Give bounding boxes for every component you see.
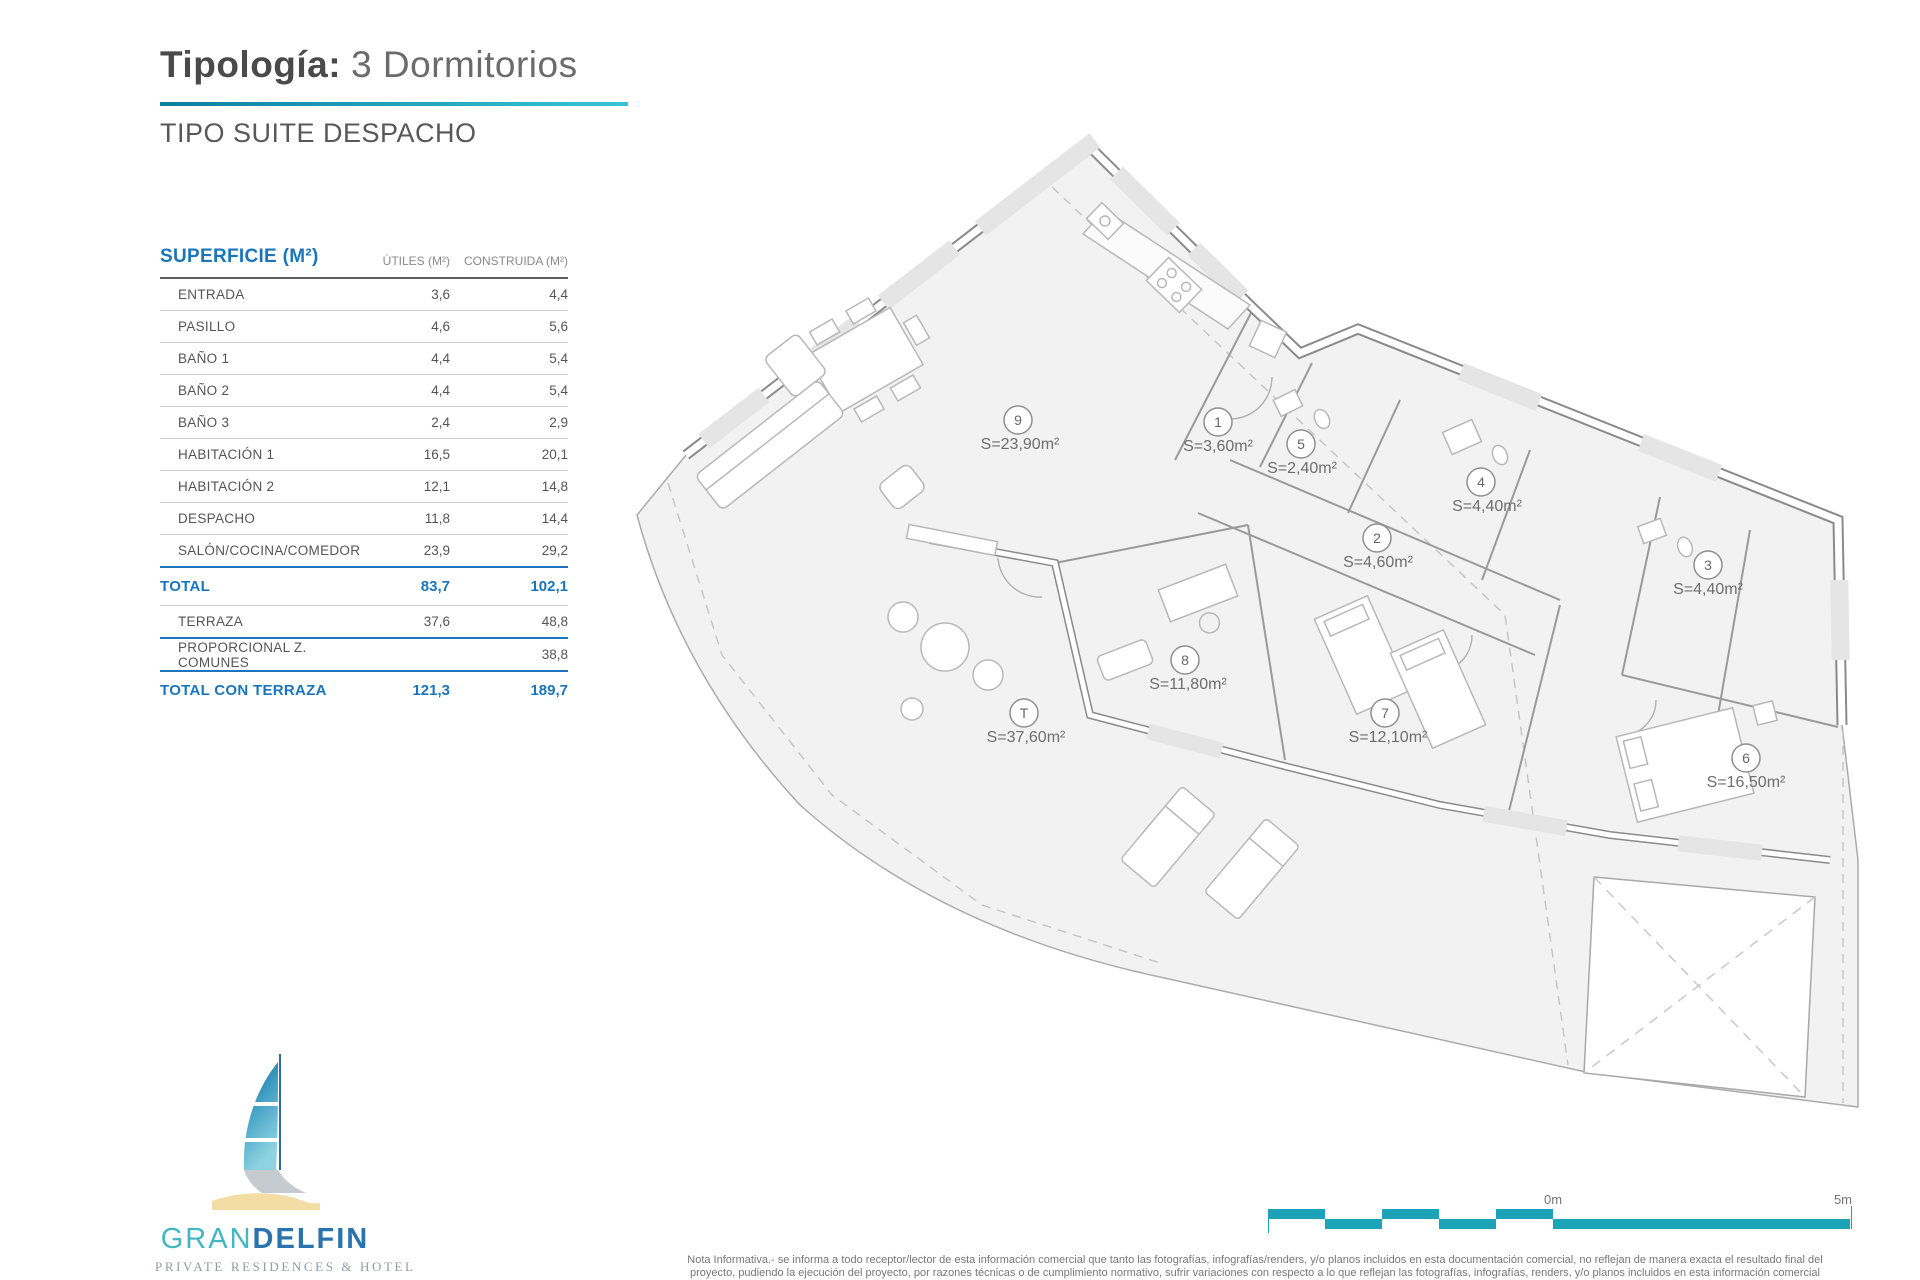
terrace-chair <box>888 602 918 632</box>
scale-bar: 0m 5m <box>1268 1192 1854 1236</box>
table-row: HABITACIÓN 116,520,1 <box>160 439 568 471</box>
brand-logo: GRANDELFIN PRIVATE RESIDENCES & HOTEL <box>155 1052 375 1275</box>
table-row-total-terraza: TOTAL CON TERRAZA121,3189,7 <box>160 672 568 709</box>
legal-note-line1: Nota Informativa.- se informa a todo rec… <box>600 1254 1910 1267</box>
page-title-bold: Tipología: <box>160 44 341 85</box>
accent-rule <box>160 102 628 106</box>
col-superficie: SUPERFICIE (M²) <box>160 246 362 268</box>
surface-table: SUPERFICIE (M²) ÚTILES (M²) CONSTRUIDA (… <box>160 246 568 709</box>
brand-name: GRANDELFIN <box>155 1223 375 1256</box>
side-table <box>1753 701 1777 725</box>
svg-text:T: T <box>1020 705 1029 721</box>
page-title-light: 3 Dormitorios <box>351 44 578 85</box>
svg-text:8: 8 <box>1181 652 1189 668</box>
svg-text:6: 6 <box>1742 750 1750 766</box>
col-construida: CONSTRUIDA (M²) <box>450 254 568 268</box>
legal-note-line2: proyecto, pudiendo la ejecución del proy… <box>600 1267 1910 1280</box>
svg-text:9: 9 <box>1014 412 1022 428</box>
svg-text:S=3,60m²: S=3,60m² <box>1183 438 1253 455</box>
scale-start-label: 0m <box>1544 1192 1562 1207</box>
svg-text:S=16,50m²: S=16,50m² <box>1707 774 1786 791</box>
table-row: TERRAZA37,648,8 <box>160 606 568 639</box>
svg-text:4: 4 <box>1477 474 1485 490</box>
svg-text:S=11,80m²: S=11,80m² <box>1149 676 1227 693</box>
void-area <box>1584 877 1815 1097</box>
legal-note: Nota Informativa.- se informa a todo rec… <box>600 1254 1910 1280</box>
terrace-table <box>921 623 969 671</box>
terrace-stool <box>901 698 923 720</box>
svg-text:S=4,40m²: S=4,40m² <box>1452 498 1522 515</box>
svg-text:1: 1 <box>1214 414 1222 430</box>
table-row-total: TOTAL83,7102,1 <box>160 568 568 606</box>
svg-text:3: 3 <box>1704 557 1712 573</box>
brand-tagline: PRIVATE RESIDENCES & HOTEL <box>155 1259 375 1275</box>
svg-text:S=37,60m²: S=37,60m² <box>987 729 1066 746</box>
svg-text:S=12,10m²: S=12,10m² <box>1349 729 1428 746</box>
floor-plan-drawing: 9 S=23,90m² 1 S=3,60m² 5 S=2,40m² 4 S=4,… <box>600 115 1900 1125</box>
col-utiles: ÚTILES (M²) <box>362 254 450 268</box>
scale-segments <box>1268 1209 1850 1229</box>
table-row: PROPORCIONAL Z. COMUNES38,8 <box>160 639 568 672</box>
floor-plan: 9 S=23,90m² 1 S=3,60m² 5 S=2,40m² 4 S=4,… <box>600 115 1900 1125</box>
sail-building-icon <box>202 1052 328 1212</box>
terrace-chair <box>973 660 1003 690</box>
svg-text:S=2,40m²: S=2,40m² <box>1267 460 1337 477</box>
page-header: Tipología:3 Dormitorios <box>160 44 578 86</box>
svg-text:2: 2 <box>1373 530 1381 546</box>
table-row: ENTRADA3,64,4 <box>160 279 568 311</box>
svg-text:S=23,90m²: S=23,90m² <box>981 436 1060 453</box>
svg-text:S=4,60m²: S=4,60m² <box>1343 554 1413 571</box>
svg-text:7: 7 <box>1381 705 1389 721</box>
table-row: BAÑO 14,45,4 <box>160 343 568 375</box>
table-row: DESPACHO11,814,4 <box>160 503 568 535</box>
svg-text:S=4,40m²: S=4,40m² <box>1673 581 1743 598</box>
page-subtitle: TIPO SUITE DESPACHO <box>160 118 477 149</box>
table-row: HABITACIÓN 212,114,8 <box>160 471 568 503</box>
svg-text:5: 5 <box>1297 436 1305 452</box>
table-row: PASILLO4,65,6 <box>160 311 568 343</box>
table-row: SALÓN/COCINA/COMEDOR23,929,2 <box>160 535 568 568</box>
surface-table-header: SUPERFICIE (M²) ÚTILES (M²) CONSTRUIDA (… <box>160 246 568 279</box>
table-row: BAÑO 24,45,4 <box>160 375 568 407</box>
table-row: BAÑO 32,42,9 <box>160 407 568 439</box>
page-title: Tipología:3 Dormitorios <box>160 44 578 86</box>
scale-end-label: 5m <box>1834 1192 1852 1207</box>
